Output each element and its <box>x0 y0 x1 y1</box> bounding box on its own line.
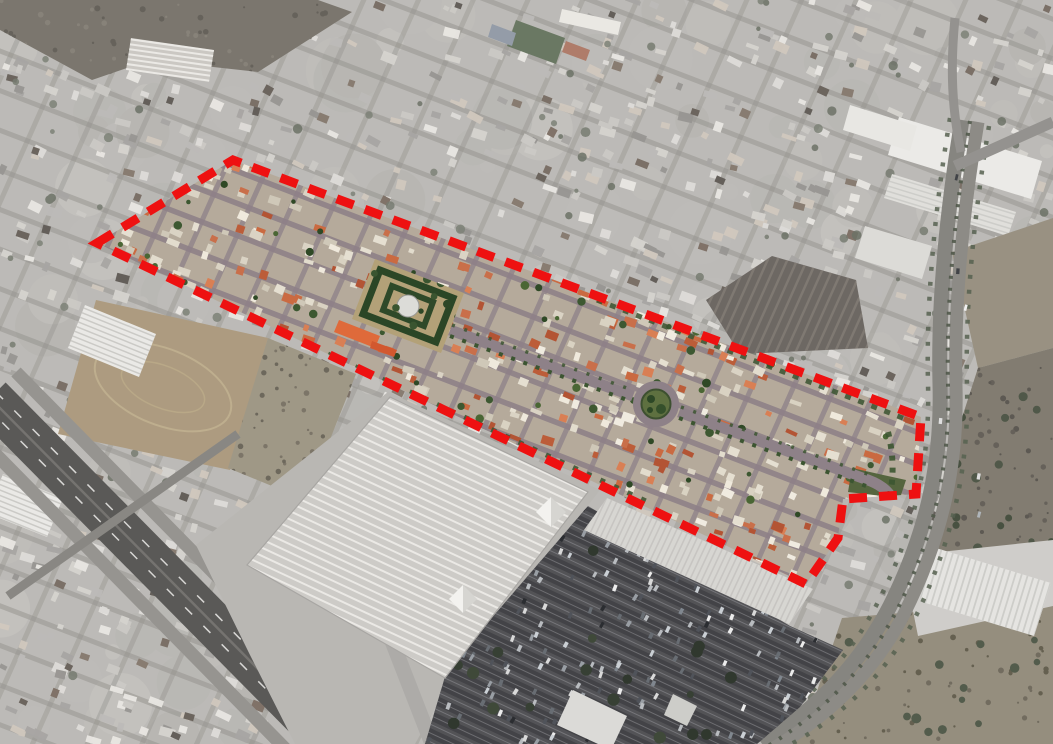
roundabout-tree-2 <box>656 404 666 414</box>
roundabout-island <box>642 390 671 419</box>
satellite-aerial-view <box>0 0 1053 744</box>
roundabout-tree-3 <box>647 407 653 413</box>
plaza-fountain <box>397 295 419 317</box>
roundabout-tree-1 <box>647 395 655 403</box>
aerial-photo <box>0 0 1053 744</box>
